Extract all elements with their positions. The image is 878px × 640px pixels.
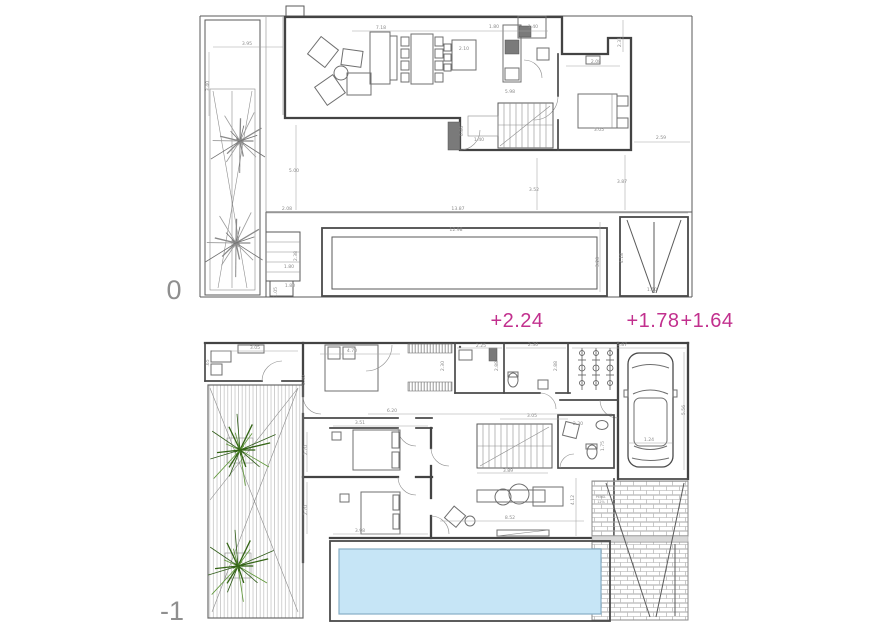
dimension-label: 2.25 <box>476 343 486 349</box>
dimension-label: 3.05 <box>594 127 604 133</box>
pool-minus1 <box>330 541 610 621</box>
dimension-label: 1.05 <box>273 287 279 297</box>
dimension-label: 3.05 <box>250 345 260 351</box>
dimension-label: 2.31 <box>617 37 623 47</box>
floorplan-canvas: 3.953.407.181.801.402.105.982.312.082.59… <box>0 0 878 640</box>
car-top-view <box>624 353 677 467</box>
dimension-label: 12.98 <box>449 227 462 233</box>
dimension-label: 1.80 <box>489 24 499 30</box>
dimension-label: 1.24 <box>644 437 654 443</box>
ramp-slope-note: 12% <box>597 500 605 504</box>
staircase-minus1 <box>477 424 552 468</box>
elevation-labels: +2.24 +1.78 +1.64 <box>490 310 733 332</box>
floor-minus1-plan: PEND. 12% 3.05.654.703.402. <box>205 342 688 621</box>
dimension-label: 2.88 <box>494 361 500 371</box>
dimension-label: 2.59 <box>656 135 666 141</box>
ramp-slope-note: PEND. <box>596 495 606 499</box>
dimension-label: 1.40 <box>528 24 538 30</box>
dimension-label: 3.95 <box>242 41 252 47</box>
bedroom-a <box>325 345 392 391</box>
living-room-furniture <box>308 32 443 105</box>
dimension-label: 7.18 <box>376 25 386 31</box>
pool-water <box>339 549 601 614</box>
bedroom-c <box>340 492 400 534</box>
dimension-label: 3.98 <box>355 528 365 534</box>
dimension-label: 1.80 <box>285 283 295 289</box>
dimension-label: 2.10 <box>459 46 469 52</box>
dimension-label: 2.88 <box>553 361 559 371</box>
dimension-label: 5.56 <box>681 405 687 415</box>
floorplan-drawing: 3.953.407.181.801.402.105.982.312.082.59… <box>0 0 878 640</box>
dimension-label: 5.98 <box>505 89 515 95</box>
dimension-label: 5.00 <box>289 168 299 174</box>
dimension-label: 1.50 <box>647 287 657 293</box>
terrace-0 <box>266 212 692 297</box>
dimension-label: 3.20 <box>595 257 601 267</box>
floor-label-0: 0 <box>166 275 181 305</box>
elevation-label: +2.24 <box>490 310 543 332</box>
dimension-label: 3.40 <box>301 375 307 385</box>
dimension-label: 1.75 <box>600 441 606 451</box>
palm-tree-icon <box>205 212 263 277</box>
dimension-label: 3.87 <box>617 179 627 185</box>
dimension-label: .65 <box>205 359 211 366</box>
family-room-furniture <box>444 484 563 536</box>
brick-ramp: PEND. 12% <box>592 481 688 620</box>
dimension-label: 2.70 <box>303 445 309 455</box>
floor-label-minus1: -1 <box>160 596 184 626</box>
dimension-label: 2.30 <box>440 361 446 371</box>
dimension-label: 13.87 <box>451 206 464 212</box>
dimension-label: 2.08 <box>591 59 601 65</box>
elevation-label: +1.64 <box>680 310 733 332</box>
installation-symbols <box>578 348 614 390</box>
dimension-label: 2.30 <box>573 421 583 427</box>
dimension-label: 1.80 <box>284 264 294 270</box>
dimension-label: 4.18 <box>619 253 625 263</box>
lap-pool-outline <box>322 228 607 296</box>
deck-terrace <box>208 385 303 618</box>
floor-0-plan: 3.953.407.181.801.402.105.982.312.082.59… <box>200 6 692 297</box>
elevation-label: +1.78 <box>626 310 679 332</box>
building-0 <box>285 17 631 150</box>
dimension-label: 2.70 <box>303 505 309 515</box>
bedroom-0 <box>578 56 628 128</box>
dimension-label: 2.30 <box>528 342 538 348</box>
plot-boundary-0 <box>200 16 692 297</box>
side-garden <box>205 6 304 295</box>
dimension-label: 3.52 <box>529 187 539 193</box>
bedroom-b <box>332 430 400 470</box>
dimension-label: 3.89 <box>503 468 513 474</box>
driveway-ramp-0 <box>620 217 688 296</box>
dimension-label: 2.38 <box>293 251 299 261</box>
dimension-label: 8.52 <box>505 515 515 521</box>
dimension-label: 3.05 <box>527 413 537 419</box>
dimension-label: 2.08 <box>282 206 292 212</box>
palm-tree-icon <box>211 112 265 173</box>
dimension-label: 3.51 <box>355 420 365 426</box>
dimension-label: 1.40 <box>474 137 484 143</box>
dimension-label: 4.70 <box>347 348 357 354</box>
dimension-label: 3.40 <box>205 81 211 91</box>
garage <box>624 353 677 467</box>
dimension-label: 6.20 <box>387 408 397 414</box>
dimension-label: 4.12 <box>570 495 576 505</box>
dimension-label: 0.86 <box>459 126 465 136</box>
dimension-label: 5.87 <box>617 342 627 348</box>
